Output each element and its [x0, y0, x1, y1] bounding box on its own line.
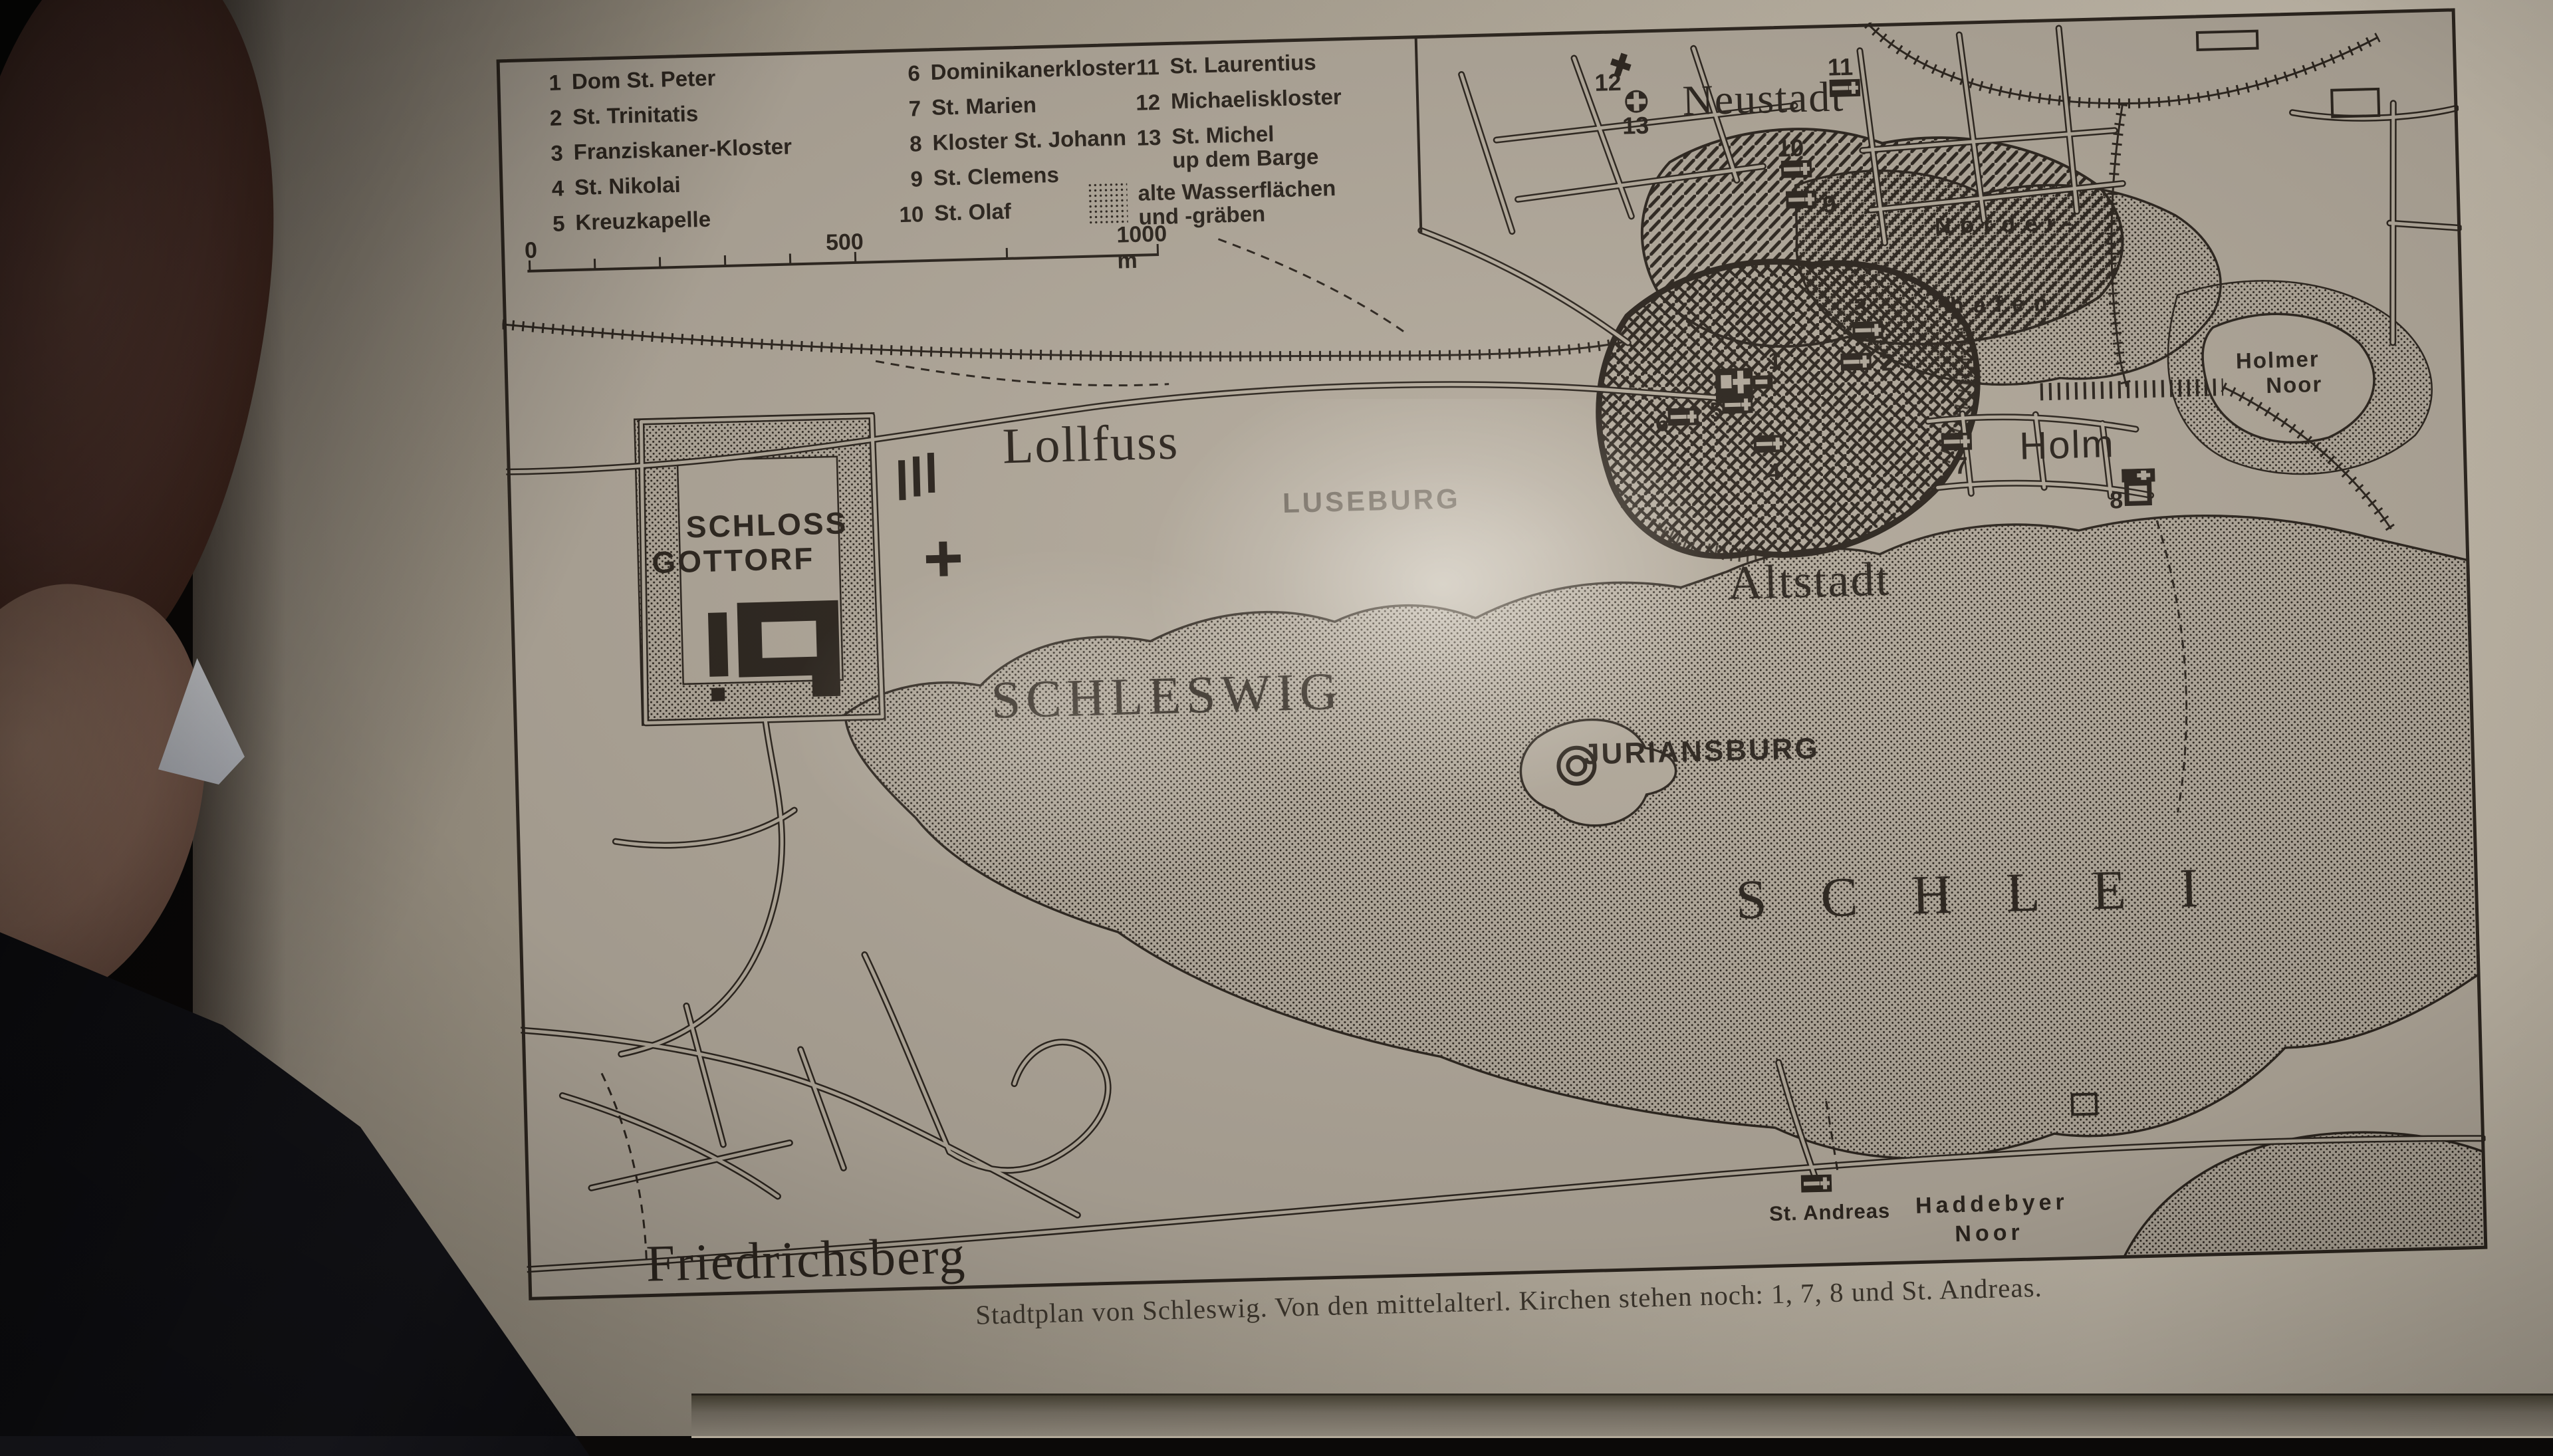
legend-number: 10	[893, 201, 924, 227]
water-swatch-icon	[1087, 182, 1128, 227]
legend-number: 12	[1130, 90, 1161, 116]
marker-number-11: 11	[1827, 53, 1853, 82]
label-hafen: hafen	[1950, 292, 2058, 318]
scale-tick	[854, 252, 856, 262]
legend-label: Michaeliskloster	[1171, 85, 1342, 113]
legend-entry-11: 11St. Laurentius	[1128, 50, 1341, 80]
legend-entry-3: 3Franziskaner-Kloster	[532, 134, 792, 166]
legend-column-1: 1Dom St. Peter2St. Trinitatis3Franziskan…	[531, 64, 794, 247]
legend-number: 5	[534, 211, 565, 237]
legend-number: 8	[891, 131, 922, 157]
scale-tick	[724, 255, 726, 265]
legend-label: Dom St. Peter	[571, 66, 715, 93]
legend-label: St. Laurentius	[1169, 51, 1316, 78]
legend-entry-13: 13St. Michel up dem Barge	[1130, 120, 1344, 174]
flash-glare	[1144, 399, 1742, 811]
label-haddebyer: Haddebyer	[1915, 1191, 2069, 1219]
legend-label: Kloster St. Johann	[932, 126, 1126, 154]
scale-tick	[529, 261, 531, 271]
scale-tick	[1005, 248, 1007, 258]
legend-label: Dominikanerkloster	[930, 55, 1136, 84]
photo-of-book-map: 1Dom St. Peter2St. Trinitatis3Franziskan…	[0, 0, 2553, 1436]
label-s-c-h-l-e-i: S C H L E I	[1735, 859, 2219, 930]
church-icon-2	[1840, 351, 1874, 375]
label-holmer: Holmer	[2236, 348, 2320, 373]
legend-number: 11	[1128, 55, 1159, 80]
legend-entry-12: 12Michaeliskloster	[1130, 85, 1342, 116]
marker-number-7: 7	[1954, 451, 1968, 480]
legend-number: 7	[890, 96, 921, 122]
legend-column-3: 11St. Laurentius12Michaeliskloster13St. …	[1128, 50, 1344, 183]
marker-number-10: 10	[1777, 134, 1804, 163]
legend-number: 4	[533, 176, 564, 201]
marker-number-3: 3	[1854, 293, 1868, 322]
scale-start: 0	[525, 237, 538, 263]
page-bottom-edge	[691, 1394, 2553, 1438]
marker-number-2: 2	[1881, 348, 1895, 377]
scale-mid: 500	[826, 229, 864, 256]
legend-entry-2: 2St. Trinitatis	[531, 99, 791, 131]
legend-label: St. Olaf	[934, 199, 1011, 225]
scale-end: 1000 m	[1116, 221, 1168, 275]
legend-entry-5: 5Kreuzkapelle	[534, 205, 794, 237]
label-norder-: Norder-	[1935, 211, 2082, 239]
label-neustadt: Neustadt	[1682, 74, 1845, 123]
legend-label: Franziskaner-Kloster	[573, 134, 792, 164]
legend-entry-6: 6Dominikanerkloster	[889, 55, 1136, 87]
marker-number-9: 9	[1822, 190, 1836, 219]
legend-number: 3	[532, 140, 563, 166]
legend-label: St. Trinitatis	[572, 102, 699, 129]
legend-number: 1	[531, 70, 562, 96]
church-icon-st-andreas	[1801, 1173, 1835, 1197]
label-st-andreas: St. Andreas	[1769, 1200, 1891, 1225]
legend-entry-1: 1Dom St. Peter	[531, 64, 790, 96]
legend-number: 6	[889, 61, 920, 86]
water-swatch-label: alte Wasserflächen und -gräben	[1138, 176, 1337, 229]
church-icon-4	[1753, 433, 1787, 457]
scale-tick	[594, 259, 596, 269]
legend-label: St. Michel up dem Barge	[1171, 121, 1319, 172]
legend-entry-4: 4St. Nikolai	[533, 170, 793, 201]
legend-label: St. Marien	[931, 93, 1037, 120]
marker-number-13: 13	[1622, 112, 1649, 140]
legend-label: St. Clemens	[933, 163, 1059, 190]
legend-entry-8: 8Kloster St. Johann	[891, 126, 1138, 158]
label-noor: Noor	[2266, 373, 2323, 398]
church-icon-9	[1786, 189, 1820, 213]
scale-tick	[789, 253, 791, 263]
scale-tick	[1157, 244, 1159, 254]
scale-tick	[659, 257, 661, 267]
label-holm: Holm	[2019, 424, 2116, 467]
marker-number-12: 12	[1594, 68, 1622, 97]
label-friedrichsberg: Friedrichsberg	[646, 1228, 967, 1290]
marker-number-8: 8	[2110, 486, 2124, 515]
label-altstadt: Altstadt	[1727, 554, 1891, 609]
legend-label: St. Nikolai	[574, 173, 681, 199]
kloster-icon-8	[2122, 468, 2159, 509]
legend-entry-7: 7St. Marien	[890, 90, 1137, 122]
marker-number-4: 4	[1766, 458, 1780, 487]
legend-label: Kreuzkapelle	[575, 207, 711, 235]
scale-line	[527, 253, 1159, 273]
legend-number: 13	[1130, 125, 1161, 151]
legend-number: 9	[892, 166, 923, 192]
marker-number-1: 1	[1768, 347, 1782, 376]
label-noor: Noor	[1955, 1221, 2024, 1247]
legend-number: 2	[531, 105, 562, 131]
church-icon-3	[1852, 320, 1886, 344]
